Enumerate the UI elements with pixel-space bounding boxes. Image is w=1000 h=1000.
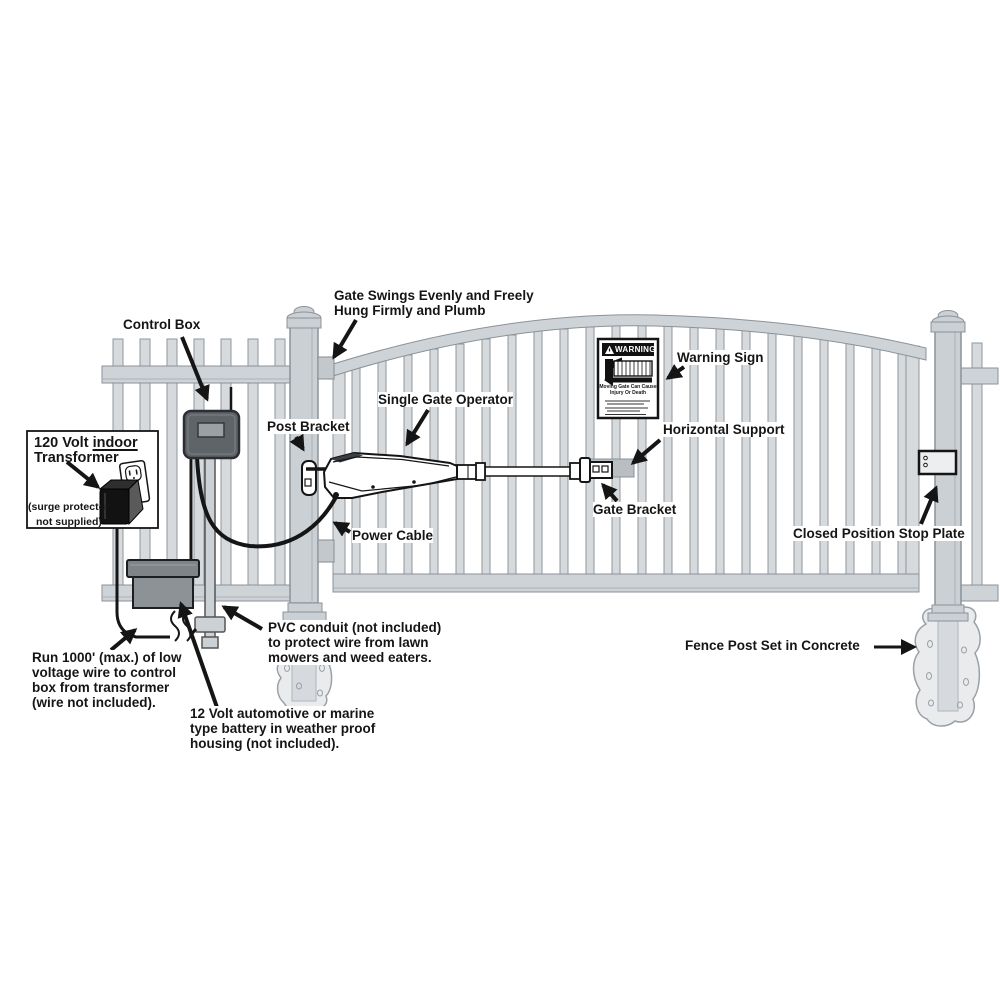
surge-note-line2: not supplied)	[36, 515, 109, 530]
gate-bracket-label: Gate Bracket	[593, 502, 676, 517]
arrow-stop-plate	[921, 488, 936, 524]
control-box-label: Control Box	[123, 317, 200, 332]
single-gate-operator-label: Single Gate Operator	[378, 392, 513, 407]
gate-swings-line1: Gate Swings Evenly and Freely	[334, 288, 534, 303]
arrow-run-wire	[111, 630, 135, 650]
surge-note-label: (surge protector not supplied)	[28, 500, 109, 530]
battery-12v-label: 12 Volt automotive or marine type batter…	[190, 706, 375, 751]
run-line3: box from transformer	[32, 680, 182, 695]
arrow-gate-swings	[334, 320, 356, 357]
piston-rod	[485, 467, 573, 476]
closed-position-stop-plate-label: Closed Position Stop Plate	[793, 526, 965, 541]
right-fence-stub	[961, 343, 998, 601]
warning-sign-label: Warning Sign	[677, 350, 764, 365]
arrow-pvc-conduit	[224, 607, 262, 629]
battery-line3: housing (not included).	[190, 736, 375, 751]
installation-diagram: Control Box Gate Swings Evenly and Freel…	[0, 0, 1000, 1000]
diagram-drawing	[0, 0, 1000, 1000]
fence-post-label: Fence Post Set in Concrete	[685, 638, 860, 653]
gate-swings-line2: Hung Firmly and Plumb	[334, 303, 534, 318]
pvc-line2: to protect wire from lawn	[268, 635, 441, 650]
run-wire-label: Run 1000' (max.) of low voltage wire to …	[32, 650, 182, 710]
control-box-display	[198, 423, 224, 437]
gate-swings-label: Gate Swings Evenly and Freely Hung Firml…	[334, 288, 534, 318]
power-cable-label: Power Cable	[352, 528, 433, 543]
surge-note-line1: (surge protector	[28, 500, 109, 515]
run-line4: (wire not included).	[32, 695, 182, 710]
run-line1: Run 1000' (max.) of low	[32, 650, 182, 665]
latch-post-footing	[914, 607, 981, 726]
battery-line1: 12 Volt automotive or marine	[190, 706, 375, 721]
gate-bracket-part	[580, 458, 590, 482]
transformer-label: 120 Volt indoor Transformer	[34, 436, 138, 466]
post-bracket-label: Post Bracket	[267, 419, 350, 434]
warning-panel-header: WARNING	[615, 345, 656, 355]
control-box-device	[184, 387, 239, 458]
battery-housing	[127, 560, 199, 608]
warning-body-line2: Injury Or Death	[599, 391, 657, 397]
run-line2: voltage wire to control	[32, 665, 182, 680]
post-bracket-plate	[302, 461, 316, 495]
horizontal-support-label: Horizontal Support	[663, 422, 785, 437]
stop-plate	[919, 451, 956, 474]
pvc-line1: PVC conduit (not included)	[268, 620, 441, 635]
transformer-line1: 120 Volt indoor	[34, 436, 138, 451]
warning-panel-body: Moving Gate Can Cause Injury Or Death	[599, 385, 657, 397]
power-cable-connector	[333, 492, 339, 498]
pvc-line3: mowers and weed eaters.	[268, 650, 441, 665]
transformer-line2: Transformer	[34, 451, 138, 466]
battery-line2: type battery in weather proof	[190, 721, 375, 736]
pvc-conduit-label: PVC conduit (not included) to protect wi…	[268, 620, 441, 665]
